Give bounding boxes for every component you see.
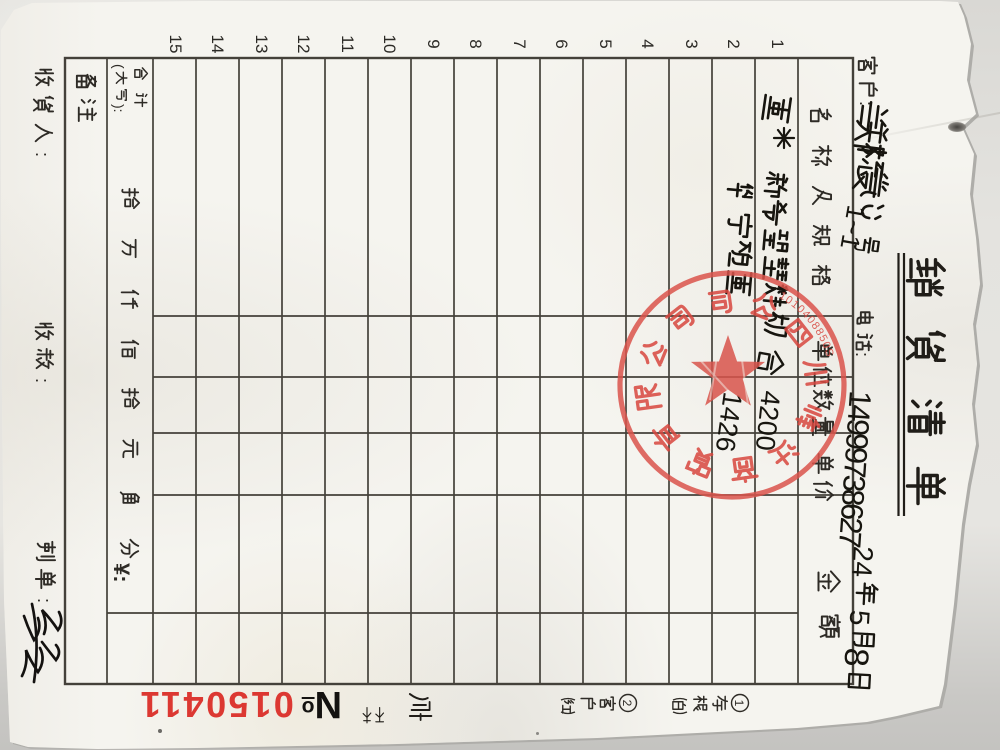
svg-text:(: ( — [111, 64, 127, 69]
svg-text:1~1: 1~1 — [834, 203, 871, 252]
svg-text:2: 2 — [724, 39, 743, 48]
svg-text::: : — [32, 152, 52, 157]
svg-text:¥:: ¥: — [109, 563, 134, 583]
svg-text:6: 6 — [552, 39, 571, 48]
svg-text:1: 1 — [768, 39, 787, 48]
svg-text:3: 3 — [682, 39, 701, 48]
svg-text:2: 2 — [620, 700, 634, 707]
svg-text:4: 4 — [638, 39, 657, 48]
svg-text::: : — [852, 352, 872, 357]
svg-text:7: 7 — [510, 39, 529, 48]
svg-text:12: 12 — [294, 35, 313, 54]
svg-text:24: 24 — [846, 545, 879, 578]
svg-text:):: ): — [111, 104, 127, 113]
svg-text:10: 10 — [380, 35, 399, 54]
svg-text:14: 14 — [208, 35, 227, 54]
svg-text:1426: 1426 — [710, 390, 748, 454]
svg-text:8: 8 — [466, 39, 485, 48]
svg-text:9: 9 — [424, 39, 443, 48]
svg-text:5: 5 — [596, 39, 615, 48]
svg-text:1: 1 — [732, 700, 746, 707]
svg-text:13: 13 — [252, 35, 271, 54]
svg-text::: : — [34, 598, 54, 603]
svg-text::: : — [856, 101, 876, 106]
svg-text::: : — [32, 378, 52, 383]
svg-text:4200: 4200 — [750, 389, 786, 452]
svg-text:15: 15 — [166, 35, 185, 54]
svg-text:8: 8 — [837, 647, 876, 668]
svg-text:5: 5 — [844, 609, 876, 626]
svg-text:11: 11 — [338, 35, 357, 53]
